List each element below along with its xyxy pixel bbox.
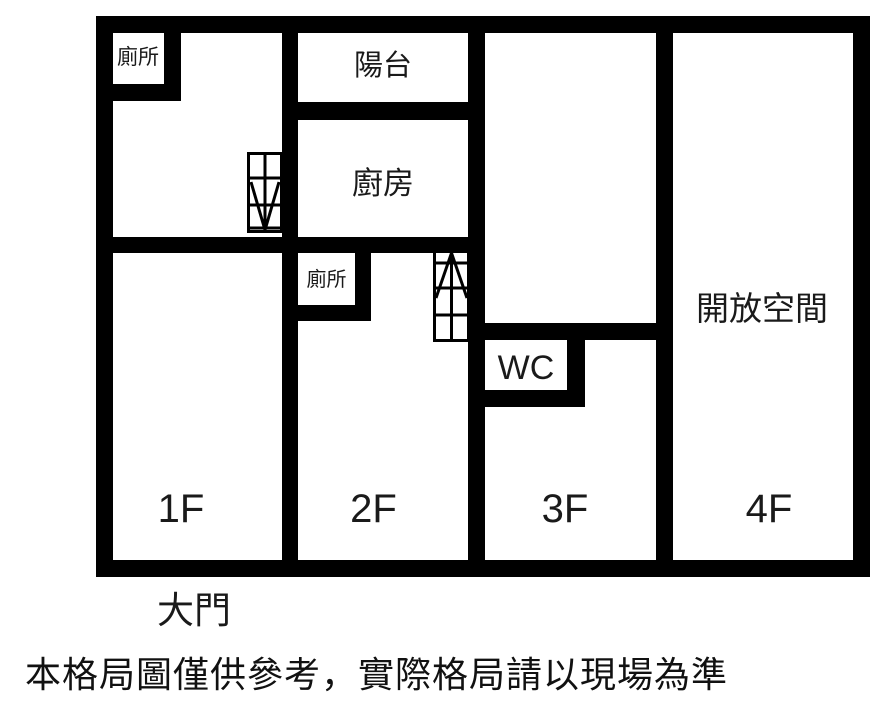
floor-label-4f: 4F — [694, 487, 844, 531]
entrance-label: 大門 — [150, 591, 238, 632]
wall-2f-balcony-bottom — [298, 102, 468, 120]
floor-label-1f: 1F — [111, 487, 251, 531]
wall-1f-2f-middle — [96, 237, 485, 253]
room-label-1f-toilet: 廁所 — [112, 46, 164, 69]
wall-outer-right — [853, 16, 870, 577]
wall-3f-wc-bottom — [485, 390, 585, 407]
room-label-2f-toilet: 廁所 — [298, 269, 355, 291]
room-label-wc: WC — [485, 350, 567, 387]
room-label-kitchen: 廚房 — [298, 167, 468, 201]
wall-divider-3f-4f — [656, 16, 673, 577]
room-label-open-space: 開放空間 — [673, 291, 851, 327]
floor-plan-diagram: 廁所 陽台 廚房 廁所 WC 開放空間 1F 2F 3F 4F 大門 本格局圖僅… — [0, 0, 889, 712]
floor-label-3f: 3F — [487, 487, 643, 531]
wall-2f-toilet-bottom — [298, 305, 371, 321]
disclaimer-text: 本格局圖僅供參考，實際格局請以現場為準 — [25, 646, 865, 698]
wall-3f-middle — [485, 323, 656, 340]
stairs-up-icon — [433, 250, 470, 342]
wall-1f-toilet-bottom — [96, 84, 181, 101]
room-label-balcony: 陽台 — [298, 51, 468, 83]
floor-label-2f: 2F — [296, 487, 451, 531]
wall-divider-2f-3f — [468, 16, 485, 577]
stairs-down-icon — [247, 152, 283, 233]
